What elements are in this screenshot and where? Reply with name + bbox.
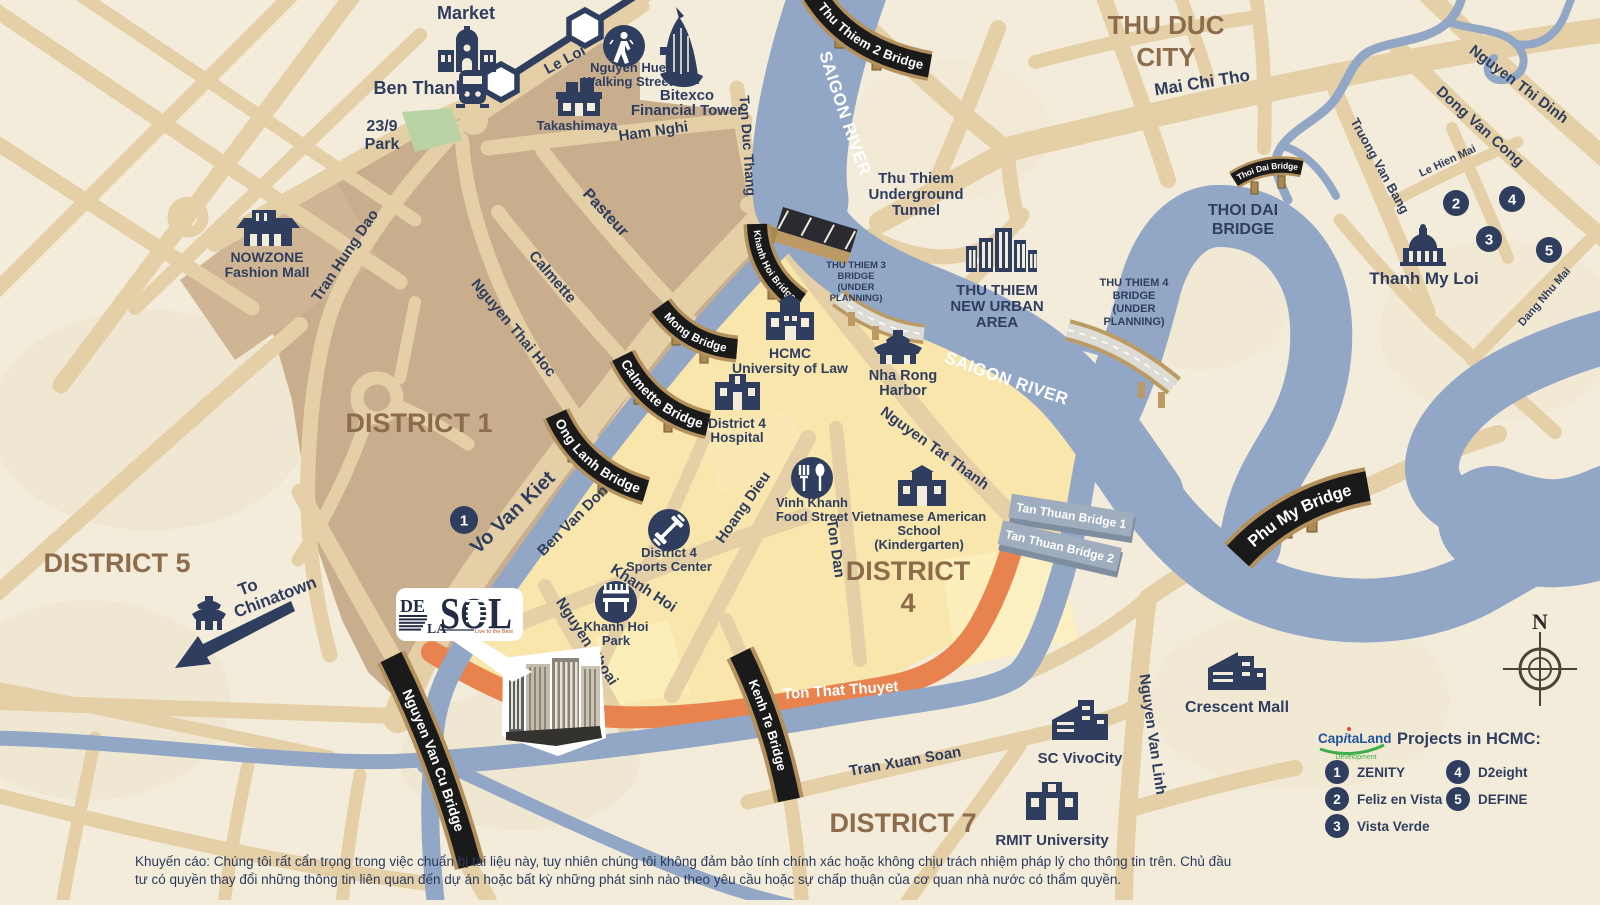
- svg-text:Food Street: Food Street: [776, 509, 849, 524]
- svg-text:Ben Thanh: Ben Thanh: [374, 78, 467, 98]
- svg-text:D2eight: D2eight: [1478, 765, 1528, 780]
- svg-text:SC VivoCity: SC VivoCity: [1038, 750, 1123, 767]
- svg-text:DISTRICT: DISTRICT: [846, 556, 971, 586]
- svg-text:THU THIEM: THU THIEM: [956, 282, 1038, 299]
- svg-text:Thanh My Loi: Thanh My Loi: [1369, 269, 1479, 288]
- svg-text:THU THIEM 4: THU THIEM 4: [1099, 277, 1169, 289]
- svg-text:BRIDGE: BRIDGE: [1212, 221, 1275, 238]
- svg-text:1: 1: [1333, 765, 1341, 780]
- svg-text:4: 4: [900, 588, 915, 618]
- svg-text:BRIDGE: BRIDGE: [1113, 290, 1156, 302]
- svg-text:3: 3: [1333, 819, 1341, 834]
- svg-text:23/9: 23/9: [366, 118, 397, 135]
- svg-text:5: 5: [1545, 243, 1553, 260]
- svg-text:Fashion Mall: Fashion Mall: [225, 264, 310, 280]
- svg-text:PLANNING): PLANNING): [1103, 316, 1164, 328]
- svg-text:DISTRICT 1: DISTRICT 1: [345, 408, 492, 438]
- svg-text:Projects in HCMC:: Projects in HCMC:: [1397, 730, 1541, 748]
- svg-text:NEW URBAN: NEW URBAN: [950, 298, 1043, 315]
- svg-text:University of Law: University of Law: [732, 360, 848, 376]
- svg-text:RMIT University: RMIT University: [995, 832, 1109, 849]
- svg-text:Vista Verde: Vista Verde: [1357, 819, 1430, 834]
- svg-text:THOI DAI: THOI DAI: [1208, 202, 1278, 219]
- svg-text:AREA: AREA: [976, 314, 1019, 331]
- svg-text:CapitaLand: CapitaLand: [1318, 731, 1392, 746]
- svg-text:tư có quyền thay đổi những thô: tư có quyền thay đổi những thông tin liê…: [135, 872, 1121, 887]
- svg-text:DE: DE: [400, 596, 425, 616]
- svg-text:Tunnel: Tunnel: [892, 202, 940, 219]
- svg-text:Financial Tower: Financial Tower: [631, 102, 743, 119]
- svg-text:DISTRICT 7: DISTRICT 7: [829, 808, 976, 838]
- svg-text:Nha Rong: Nha Rong: [869, 368, 937, 384]
- svg-text:District 4: District 4: [641, 545, 697, 560]
- svg-text:2: 2: [1333, 792, 1341, 807]
- svg-text:1: 1: [460, 513, 468, 530]
- svg-text:Feliz en Vista: Feliz en Vista: [1357, 792, 1443, 807]
- svg-text:ZENITY: ZENITY: [1357, 765, 1405, 780]
- svg-text:Thu Thiem: Thu Thiem: [878, 170, 954, 187]
- svg-text:Sports Center: Sports Center: [626, 559, 712, 574]
- svg-text:District 4: District 4: [708, 416, 766, 431]
- svg-text:Hospital: Hospital: [710, 430, 763, 445]
- svg-text:Nguyen Hue: Nguyen Hue: [590, 60, 666, 75]
- svg-text:Crescent Mall: Crescent Mall: [1185, 699, 1289, 716]
- svg-text:HCMC: HCMC: [769, 345, 811, 361]
- svg-text:N: N: [1532, 609, 1548, 634]
- svg-text:5: 5: [1454, 792, 1462, 807]
- svg-text:Takashimaya: Takashimaya: [537, 118, 618, 133]
- svg-text:(UNDER: (UNDER: [838, 282, 875, 293]
- svg-text:Park: Park: [602, 633, 631, 648]
- svg-text:DISTRICT 5: DISTRICT 5: [43, 548, 190, 578]
- svg-text:PLANNING): PLANNING): [830, 293, 883, 304]
- svg-text:Khanh Hoi: Khanh Hoi: [584, 619, 649, 634]
- svg-text:Park: Park: [365, 136, 400, 153]
- svg-text:THU THIEM 3: THU THIEM 3: [826, 260, 886, 271]
- svg-text:NOWZONE: NOWZONE: [230, 249, 303, 265]
- svg-text:School: School: [897, 523, 940, 538]
- svg-text:Vinh Khanh: Vinh Khanh: [776, 495, 848, 510]
- svg-text:DEFINE: DEFINE: [1478, 792, 1528, 807]
- svg-text:BRIDGE: BRIDGE: [838, 271, 875, 282]
- svg-text:Khuyến cáo: Chúng tôi rất cẩn: Khuyến cáo: Chúng tôi rất cẩn trọng tron…: [135, 854, 1231, 869]
- svg-text:Development: Development: [1335, 754, 1376, 761]
- svg-text:THU DUC: THU DUC: [1108, 10, 1225, 40]
- svg-text:4: 4: [1454, 765, 1462, 780]
- svg-text:CITY: CITY: [1136, 42, 1195, 72]
- svg-text:Underground: Underground: [869, 186, 964, 203]
- svg-text:Harbor: Harbor: [879, 383, 927, 399]
- svg-text:(UNDER: (UNDER: [1113, 303, 1156, 315]
- svg-text:3: 3: [1485, 232, 1493, 249]
- svg-text:Vietnamese American: Vietnamese American: [852, 509, 986, 524]
- svg-text:Market: Market: [437, 3, 495, 23]
- svg-text:(Kindergarten): (Kindergarten): [874, 537, 964, 552]
- svg-text:4: 4: [1508, 192, 1517, 209]
- svg-text:Live to the Best: Live to the Best: [475, 629, 513, 635]
- svg-text:2: 2: [1452, 196, 1460, 213]
